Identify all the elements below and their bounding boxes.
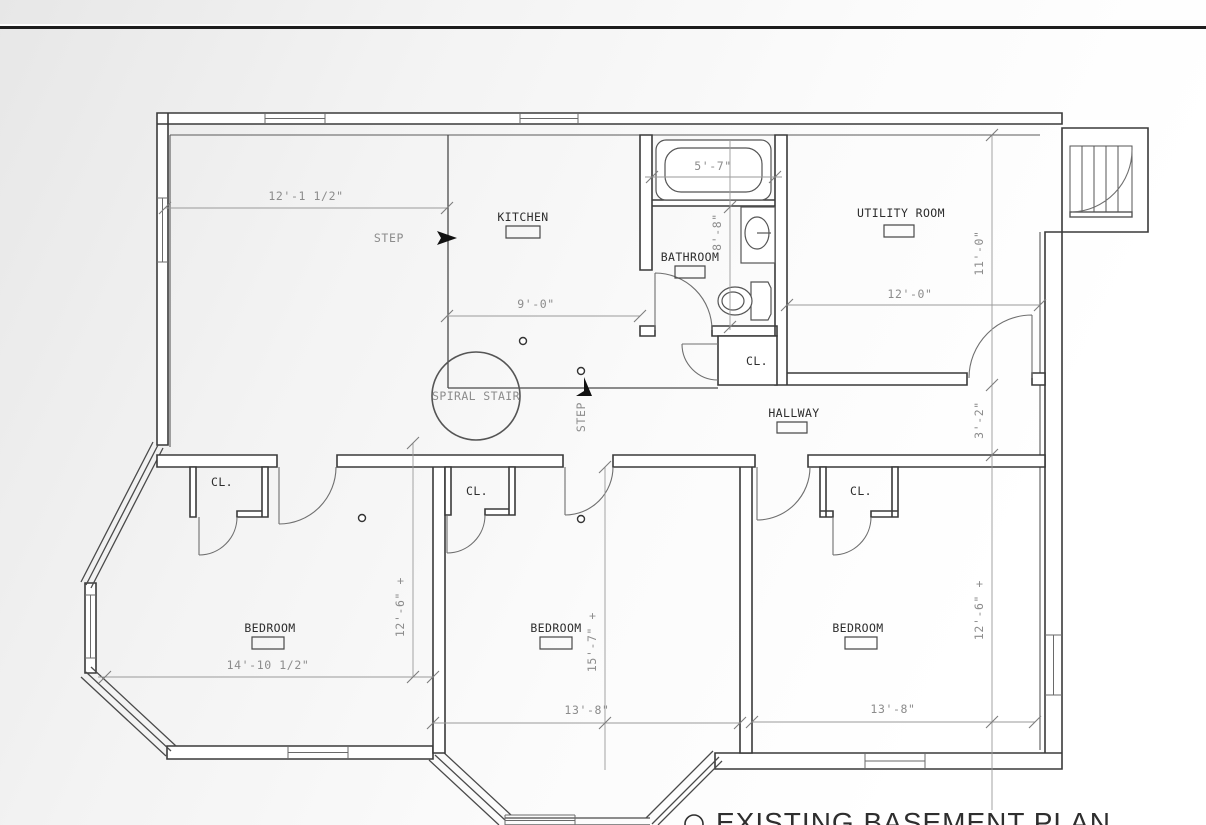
dim-hallway-width: 3'-2" — [972, 401, 986, 439]
bedroom-left-label: BEDROOM — [244, 621, 295, 635]
dim-bath-depth: 8'-8" — [710, 213, 724, 251]
kitchen-label: KITCHEN — [497, 210, 548, 224]
bathroom-door — [655, 273, 712, 330]
bathroom-label: BATHROOM — [661, 250, 720, 264]
utility-room-label: UTILITY ROOM — [857, 206, 945, 220]
closet-hall-label: CL. — [746, 354, 768, 368]
dim-kitchen-width: 12'-1 1/2" — [268, 189, 343, 203]
exterior-walls — [81, 113, 1148, 825]
toilet-tank — [751, 282, 771, 320]
bedroom-right-label: BEDROOM — [832, 621, 883, 635]
bedroom-closet-walls — [190, 467, 898, 517]
basement-floor-plan-drawing: KITCHEN BATHROOM UTILITY ROOM HALLWAY SP… — [0, 0, 1206, 825]
bedroom-right-door — [757, 467, 810, 520]
closet-left-label: CL. — [211, 475, 233, 489]
toilet-bowl — [718, 287, 752, 315]
step-label-hallway: STEP — [574, 402, 588, 432]
drawing-title-block: EXISTING BASEMENT PLAN — [685, 807, 1111, 825]
floor-drain-marker-bedroom-middle — [578, 516, 585, 523]
bay-wall-upper-left-diagonal — [81, 442, 163, 588]
sink-vanity — [741, 207, 775, 263]
dim-utility-depth: 11'-0" — [972, 230, 986, 275]
hallway-label: HALLWAY — [768, 406, 819, 420]
dim-bedroom-middle-depth: 15'-7" + — [585, 612, 599, 672]
closet-right-label: CL. — [850, 484, 872, 498]
room-label-tag-boxes — [252, 225, 914, 649]
step-arrow-hallway — [576, 377, 592, 396]
bay-bottom-wall — [505, 818, 650, 825]
drawing-title: EXISTING BASEMENT PLAN — [716, 807, 1111, 825]
closet-left-door — [199, 517, 237, 555]
title-bullet-circle — [685, 815, 703, 825]
spiral-stair-label: SPIRAL STAIR — [432, 389, 520, 403]
bay-wall-lower-left-diagonal — [81, 667, 176, 756]
closet-right-door — [833, 517, 871, 555]
closet-middle-door — [447, 515, 485, 553]
bedroom-middle-door — [565, 467, 613, 515]
bedroom-middle-label: BEDROOM — [530, 621, 581, 635]
dim-bedroom-right-depth: 12'-6" + — [972, 580, 986, 640]
bay-wall-bottom-left-diagonal — [429, 750, 511, 825]
dim-kitchen-depth: 9'-0" — [517, 297, 555, 311]
dim-bedroom-right-width: 13'-8" — [870, 702, 915, 716]
dim-tub-width: 5'-7" — [694, 159, 732, 173]
plan-text: KITCHEN BATHROOM UTILITY ROOM HALLWAY SP… — [211, 159, 986, 717]
dim-utility-width: 12'-0" — [887, 287, 932, 301]
doors — [199, 273, 1032, 555]
window-bay-bottom — [505, 815, 575, 825]
floor-drain-marker-kitchen — [520, 338, 527, 345]
step-label-kitchen: STEP — [374, 231, 404, 245]
bay-wall-bottom-right-diagonal — [646, 751, 722, 825]
step-arrow-kitchen — [437, 231, 457, 245]
utility-room-door — [969, 315, 1032, 378]
scanned-plan-sheet: KITCHEN BATHROOM UTILITY ROOM HALLWAY SP… — [0, 0, 1206, 825]
closet-middle-label: CL. — [466, 484, 488, 498]
dim-bedroom-left-depth: 12'-6" + — [393, 577, 407, 637]
floor-drain-marker-bedroom-left — [359, 515, 366, 522]
dim-bedroom-middle-width: 13'-8" — [564, 703, 609, 717]
dim-bedroom-left-width: 14'-10 1/2" — [227, 658, 310, 672]
hall-closet-door — [682, 344, 718, 380]
floor-drain-marker-step — [578, 368, 585, 375]
bedroom-left-door — [279, 467, 336, 524]
